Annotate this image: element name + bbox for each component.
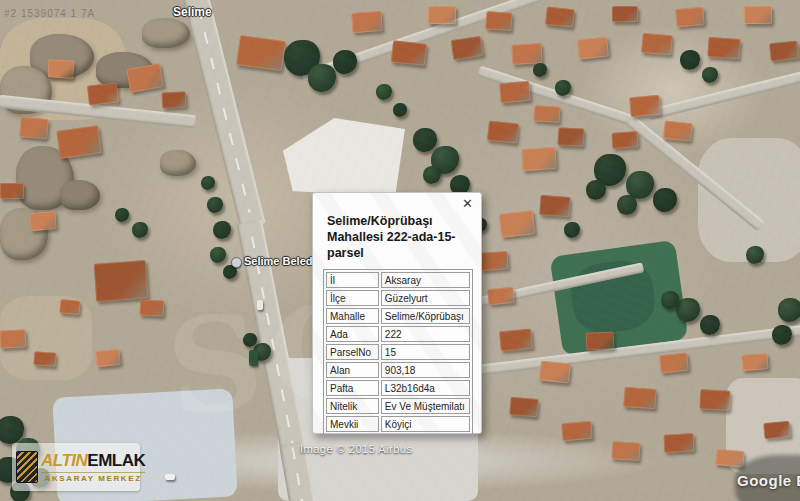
row-label: Alan <box>326 362 379 378</box>
house-roof <box>47 59 74 79</box>
row-value: L32b16d4a <box>381 380 470 396</box>
house-roof <box>558 127 585 146</box>
house-roof <box>741 353 768 371</box>
house-roof <box>499 81 531 104</box>
row-label: Mahalle <box>326 308 379 324</box>
house-roof <box>744 6 772 24</box>
imagery-attribution: Image © 2015 Airbus <box>300 443 412 455</box>
realtor-brand: ALTINEMLAK <box>41 452 145 469</box>
house-roof <box>707 37 740 59</box>
house-roof <box>487 120 519 143</box>
house-roof <box>545 7 575 28</box>
row-value: Köyiçi <box>381 416 470 432</box>
house-roof <box>699 389 730 411</box>
house-roof <box>664 433 695 453</box>
house-roof <box>487 287 514 305</box>
ground-patch <box>698 138 800 262</box>
house-roof <box>236 35 286 71</box>
screenshot-root: SC #2 1539074 1 7A Selime Selime Beledi … <box>0 0 800 501</box>
house-roof <box>586 331 615 350</box>
parcel-info-popup: ✕ Selime/Köprübaşı Mahallesi 222-ada-15-… <box>312 192 482 434</box>
house-roof <box>499 210 535 237</box>
rock-formation <box>142 18 190 48</box>
house-roof <box>56 125 101 159</box>
house-roof <box>641 33 673 56</box>
parcel-title: Selime/Köprübaşı Mahallesi 222-ada-15-pa… <box>327 213 469 261</box>
house-roof <box>715 449 744 467</box>
house-roof <box>162 91 187 108</box>
rock-formation <box>160 150 196 176</box>
house-roof <box>511 43 542 65</box>
row-label: Nitelik <box>326 398 379 414</box>
house-roof <box>663 121 693 142</box>
house-roof <box>521 147 556 171</box>
house-roof <box>539 195 570 217</box>
table-row: Ada 222 <box>326 326 470 342</box>
house-roof <box>611 441 640 461</box>
parcel-table-body: İl Aksaray İlçe Güzelyurt Mahalle Selime… <box>326 272 470 432</box>
house-roof <box>140 299 165 316</box>
parcel-table: İl Aksaray İlçe Güzelyurt Mahalle Selime… <box>323 269 473 435</box>
table-row: İl Aksaray <box>326 272 470 288</box>
house-roof <box>499 329 533 352</box>
table-row: Mahalle Selime/Köprübaşı <box>326 308 470 324</box>
house-roof <box>19 117 49 139</box>
house-roof <box>451 36 483 60</box>
table-row: Pafta L32b16d4a <box>326 380 470 396</box>
row-label: Ada <box>326 326 379 342</box>
row-value: 903,18 <box>381 362 470 378</box>
house-roof <box>0 183 24 199</box>
realtor-emblem-icon <box>16 451 38 483</box>
house-roof <box>391 40 427 65</box>
tree <box>778 298 800 322</box>
house-roof <box>675 7 704 27</box>
house-roof <box>479 251 508 271</box>
house-roof <box>577 36 609 59</box>
house-roof <box>351 11 382 33</box>
house-roof <box>561 421 592 442</box>
row-value: Selime/Köprübaşı <box>381 308 470 324</box>
house-roof <box>87 82 119 105</box>
house-roof <box>539 360 571 383</box>
house-roof <box>428 6 456 24</box>
house-roof <box>612 6 638 22</box>
table-row: Nitelik Ev Ve Müştemilatı <box>326 398 470 414</box>
row-value: 15 <box>381 344 470 360</box>
row-value: Ev Ve Müştemilatı <box>381 398 470 414</box>
faint-id-watermark: #2 1539074 1 7A <box>4 8 95 19</box>
placemark-icon[interactable] <box>231 257 242 268</box>
house-roof <box>95 349 121 367</box>
house-roof <box>485 11 512 31</box>
house-roof <box>533 105 560 123</box>
house-roof <box>94 260 149 302</box>
vehicle <box>249 350 258 366</box>
house-roof <box>509 397 538 417</box>
house-roof <box>763 421 790 439</box>
brand-dark-part: EMLAK <box>87 451 145 470</box>
rock-formation <box>60 180 100 210</box>
row-label: Pafta <box>326 380 379 396</box>
house-roof <box>629 95 661 118</box>
vehicle <box>165 474 175 480</box>
row-label: ParselNo <box>326 344 379 360</box>
table-row: Mevkii Köyiçi <box>326 416 470 432</box>
house-roof <box>659 353 689 374</box>
road-median <box>292 447 305 501</box>
realtor-logo: ALTINEMLAK AKSARAY MERKEZ <box>12 443 140 491</box>
house-roof <box>769 41 799 62</box>
table-row: Alan 903,18 <box>326 362 470 378</box>
row-label: İl <box>326 272 379 288</box>
table-row: İlçe Güzelyurt <box>326 290 470 306</box>
house-roof <box>0 329 26 348</box>
vehicle <box>257 300 263 310</box>
row-value: 222 <box>381 326 470 342</box>
google-earth-logo: Google Eart <box>737 472 800 489</box>
brand-gold-part: ALTIN <box>41 451 87 470</box>
close-icon[interactable]: ✕ <box>462 198 473 210</box>
row-label: Mevkii <box>326 416 379 432</box>
place-label-selime: Selime <box>173 5 212 19</box>
realtor-subtitle: AKSARAY MERKEZ <box>41 472 145 483</box>
row-value: Aksaray <box>381 272 470 288</box>
place-label-selime-belediyesi: Selime Beledi <box>244 255 316 267</box>
row-label: İlçe <box>326 290 379 306</box>
table-row: ParselNo 15 <box>326 344 470 360</box>
house-roof <box>29 211 56 231</box>
house-roof <box>34 351 57 367</box>
house-roof <box>611 131 638 149</box>
row-value: Güzelyurt <box>381 290 470 306</box>
house-roof <box>59 299 80 315</box>
house-roof <box>623 387 656 409</box>
